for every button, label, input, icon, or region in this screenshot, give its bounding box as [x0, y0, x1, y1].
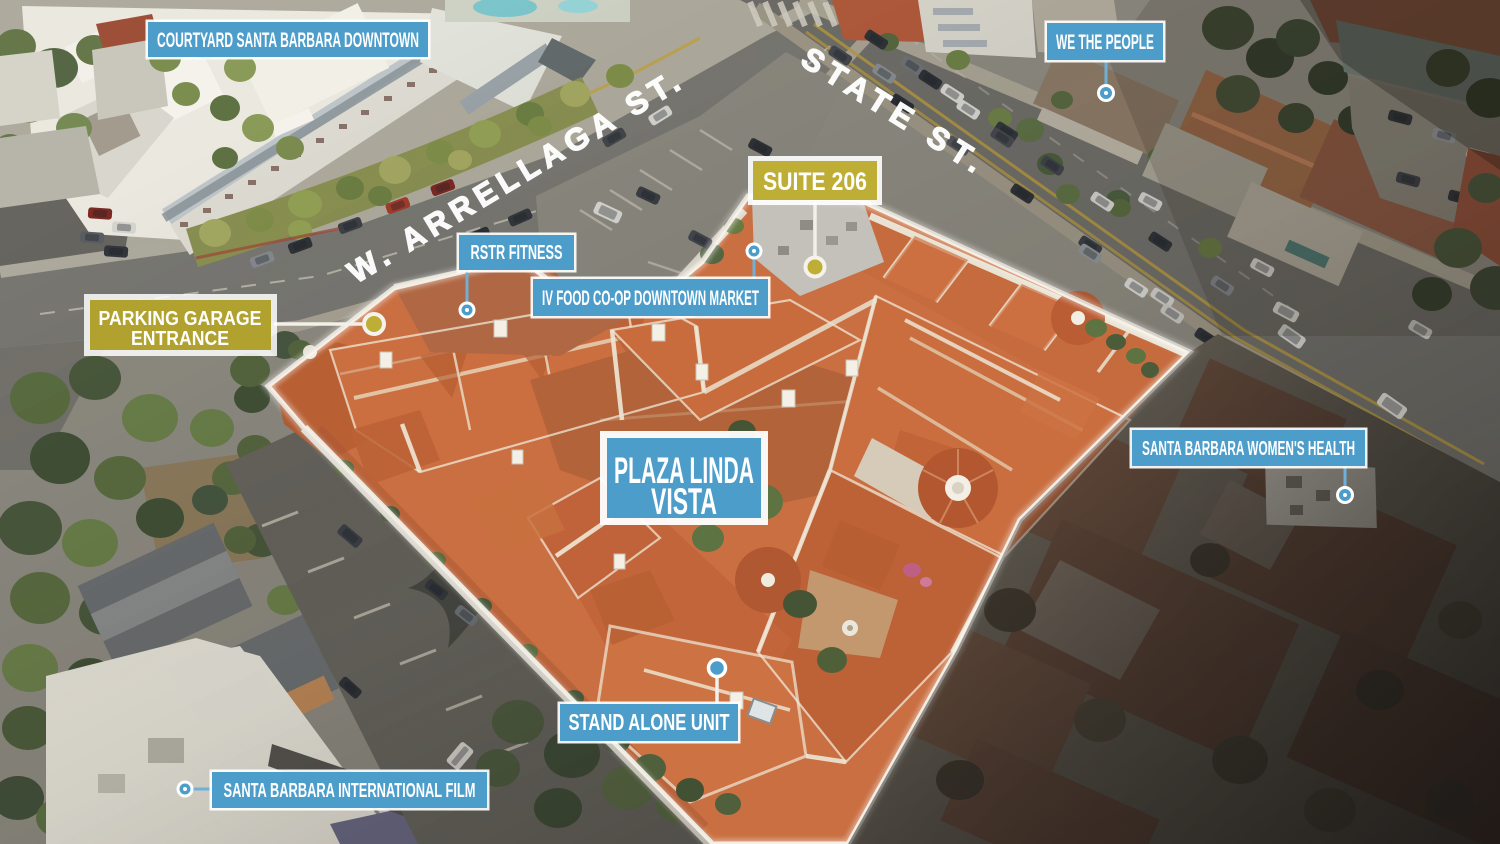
svg-text:STAND ALONE UNIT: STAND ALONE UNIT [569, 709, 730, 735]
svg-text:SUITE 206: SUITE 206 [763, 168, 867, 196]
svg-text:PARKING GARAGE: PARKING GARAGE [99, 308, 262, 330]
svg-text:RSTR FITNESS: RSTR FITNESS [471, 242, 563, 264]
svg-text:VISTA: VISTA [651, 481, 717, 522]
svg-text:IV FOOD CO-OP DOWNTOWN MARKET: IV FOOD CO-OP DOWNTOWN MARKET [542, 287, 759, 310]
svg-text:COURTYARD SANTA BARBARA DOWNTO: COURTYARD SANTA BARBARA DOWNTOWN [157, 29, 419, 52]
svg-text:SANTA BARBARA WOMEN'S HEALTH: SANTA BARBARA WOMEN'S HEALTH [1142, 438, 1355, 460]
svg-text:ENTRANCE: ENTRANCE [131, 328, 229, 350]
svg-text:SANTA BARBARA INTERNATIONAL FI: SANTA BARBARA INTERNATIONAL FILM [224, 780, 476, 802]
svg-text:WE THE PEOPLE: WE THE PEOPLE [1056, 31, 1154, 54]
